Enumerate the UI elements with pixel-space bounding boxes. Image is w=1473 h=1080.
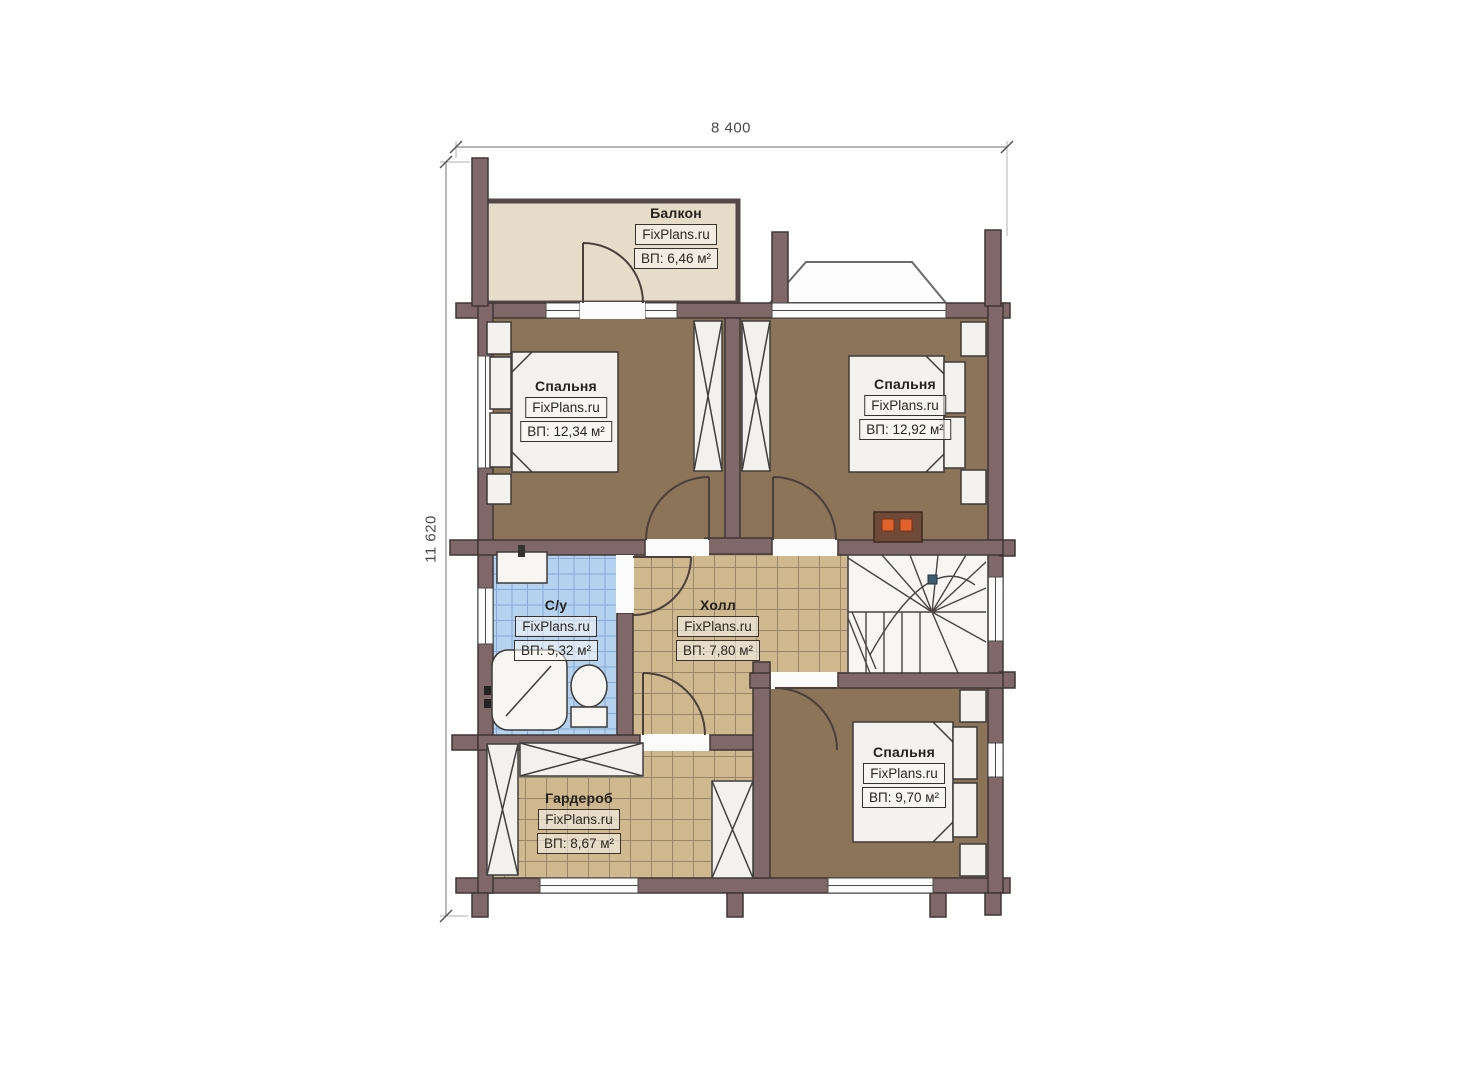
pillow-icon [953, 727, 977, 779]
opening-wardrobe [641, 734, 709, 751]
room-label-bedroom-bottom-right: Спальня FixPlans.ru ВП: 9,70 м² [862, 744, 946, 808]
wardrobe-icon [487, 744, 518, 875]
opening-bedroom1 [646, 539, 709, 556]
room-label-balcony: Балкон FixPlans.ru ВП: 6,46 м² [634, 205, 718, 269]
winder-staircase-icon [848, 555, 988, 673]
room-name: Балкон [650, 205, 702, 221]
room-label-wardrobe: Гардероб FixPlans.ru ВП: 8,67 м² [537, 790, 621, 854]
floor-plan-page: 8 400 11 620 Балкон FixPlans.ru ВП: 6,46… [0, 0, 1473, 1080]
area-box: ВП: 12,92 м² [859, 419, 951, 440]
nightstand-icon [487, 322, 511, 354]
brand-box: FixPlans.ru [863, 763, 945, 784]
opening-bedroom3 [771, 672, 837, 689]
wall-stub [450, 540, 478, 555]
brand-box: FixPlans.ru [525, 397, 607, 418]
brand-box: FixPlans.ru [864, 395, 946, 416]
opening-balcony [580, 302, 645, 319]
wall-stub [452, 735, 478, 750]
stove-icon [874, 512, 922, 542]
nightstand-icon [960, 690, 986, 722]
area-box: ВП: 12,34 м² [520, 421, 612, 442]
area-box: ВП: 8,67 м² [537, 833, 621, 854]
room-name: Спальня [873, 744, 935, 760]
room-name: Холл [700, 597, 736, 613]
wall-stub [772, 232, 788, 306]
dimension-width-label: 8 400 [711, 120, 751, 137]
wall-between-bedrooms [725, 318, 740, 540]
shower-icon [484, 650, 567, 730]
nightstand-icon [961, 322, 986, 356]
wall-stub [985, 230, 1001, 306]
room-label-bedroom-top-left: Спальня FixPlans.ru ВП: 12,34 м² [520, 378, 612, 442]
dimension-height-label: 11 620 [423, 515, 440, 563]
opening-bedroom2 [773, 539, 837, 556]
room-name: Спальня [874, 376, 936, 392]
wardrobe-icon [694, 321, 722, 471]
wardrobe-icon [712, 781, 753, 878]
area-box: ВП: 5,32 м² [514, 640, 598, 661]
wall-wardrobe-top-right [710, 735, 755, 750]
wall-stub [472, 893, 488, 917]
area-box: ВП: 6,46 м² [634, 248, 718, 269]
nightstand-icon [960, 844, 986, 876]
brand-box: FixPlans.ru [635, 224, 717, 245]
opening-bathroom [616, 555, 634, 613]
wall-stub [472, 158, 488, 306]
wardrobe-icon [742, 321, 770, 471]
pillow-icon [953, 783, 977, 837]
wardrobe-icon [520, 743, 643, 776]
room-label-bathroom: С/у FixPlans.ru ВП: 5,32 м² [514, 597, 598, 661]
room-name: Гардероб [545, 790, 613, 806]
pillow-icon [490, 357, 511, 409]
brand-box: FixPlans.ru [515, 616, 597, 637]
nightstand-icon [487, 474, 511, 504]
wall-stub [930, 893, 946, 917]
nightstand-icon [961, 470, 986, 504]
wall-bath-right [617, 613, 633, 750]
room-name: С/у [545, 597, 567, 613]
toilet-icon [571, 665, 607, 727]
room-label-bedroom-top-right: Спальня FixPlans.ru ВП: 12,92 м² [859, 376, 951, 440]
room-label-hall: Холл FixPlans.ru ВП: 7,80 м² [676, 597, 760, 661]
bay-window-icon [770, 262, 946, 303]
wall-stub [985, 893, 1001, 915]
wall-mid-tee [705, 538, 772, 554]
floor-plan-drawing [0, 0, 1473, 1080]
area-box: ВП: 7,80 м² [676, 640, 760, 661]
area-box: ВП: 9,70 м² [862, 787, 946, 808]
brand-box: FixPlans.ru [538, 809, 620, 830]
wall-wardrobe-right [753, 662, 770, 878]
room-name: Спальня [535, 378, 597, 394]
wall-stub [727, 893, 743, 917]
wall-bedroom3-top-left [750, 673, 770, 688]
wall-bedroom3-top [838, 673, 1003, 688]
brand-box: FixPlans.ru [677, 616, 759, 637]
pillow-icon [490, 413, 511, 467]
